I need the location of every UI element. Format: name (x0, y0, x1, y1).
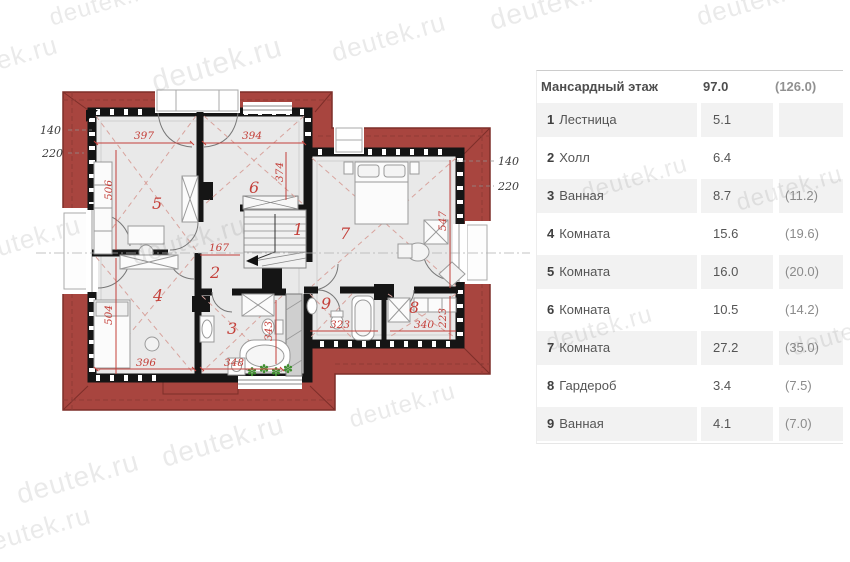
table-row: 3Ванная 8.7 (11.2) (537, 177, 843, 215)
room-name: Комната (559, 302, 610, 317)
room-2-number: 2 (209, 263, 220, 282)
room-net-area: 6.4 (701, 141, 773, 175)
room-gross-area: (11.2) (779, 179, 843, 213)
room-net-area: 10.5 (701, 293, 773, 327)
dim-374: 374 (274, 162, 286, 182)
ext-dim-right-220: 220 (497, 180, 519, 193)
table-row: 5Комната 16.0 (20.0) (537, 253, 843, 291)
room-number: 7 (547, 340, 554, 355)
room-5-number: 5 (152, 194, 162, 213)
legend-net-area: 97.0 (695, 79, 775, 94)
legend-header: Мансардный этаж 97.0 (126.0) (537, 71, 843, 101)
room-gross-area: (14.2) (779, 293, 843, 327)
room-8-number: 8 (409, 298, 419, 317)
room-legend-table: Мансардный этаж 97.0 (126.0) 1Лестница 5… (536, 70, 843, 444)
table-row: 2Холл 6.4 (537, 139, 843, 177)
room-name: Лестница (559, 112, 616, 127)
room-3-number: 3 (227, 319, 237, 338)
ext-dim-left-140: 140 (40, 124, 61, 137)
dim-340: 340 (414, 319, 434, 331)
dim-323: 323 (330, 319, 350, 331)
dim-504: 504 (103, 305, 115, 325)
room-net-area: 27.2 (701, 331, 773, 365)
room-7-number: 7 (340, 224, 351, 243)
room-9-number: 9 (321, 294, 331, 313)
room-name: Ванная (559, 416, 604, 431)
dim-348: 348 (224, 357, 244, 369)
table-row: 4Комната 15.6 (19.6) (537, 215, 843, 253)
table-row: 7Комната 27.2 (35.0) (537, 329, 843, 367)
room-gross-area: (7.0) (779, 407, 843, 441)
room-gross-area: (7.5) (779, 369, 843, 403)
room-name: Холл (559, 150, 590, 165)
room-gross-area: (35.0) (779, 331, 843, 365)
room-gross-area (779, 141, 843, 175)
room-number: 6 (547, 302, 554, 317)
room-number: 3 (547, 188, 554, 203)
plant-icon: ✽ (271, 365, 281, 379)
dim-394: 394 (242, 130, 262, 142)
table-row: 9Ванная 4.1 (7.0) (537, 405, 843, 443)
table-row: 8Гардероб 3.4 (7.5) (537, 367, 843, 405)
room-net-area: 5.1 (701, 103, 773, 137)
room-name: Комната (559, 226, 610, 241)
legend-gross-area: (126.0) (775, 79, 843, 94)
dim-343: 343 (263, 321, 275, 341)
room-gross-area: (20.0) (779, 255, 843, 289)
room-6-number: 6 (249, 178, 259, 197)
room-net-area: 8.7 (701, 179, 773, 213)
room-net-area: 3.4 (701, 369, 773, 403)
room-name: Комната (559, 340, 610, 355)
room-number: 4 (547, 226, 554, 241)
room-name: Ванная (559, 188, 604, 203)
room-number: 5 (547, 264, 554, 279)
plant-icon: ✽ (247, 365, 257, 379)
dim-396: 396 (136, 357, 156, 369)
room-1-number: 1 (293, 220, 303, 239)
room-name: Комната (559, 264, 610, 279)
room-number: 8 (547, 378, 554, 393)
ext-dim-left-220: 220 (41, 147, 63, 160)
dim-547: 547 (437, 211, 449, 231)
right-balcony (465, 221, 491, 284)
room-net-area: 16.0 (701, 255, 773, 289)
table-row: 1Лестница 5.1 (537, 101, 843, 139)
room-gross-area: (19.6) (779, 217, 843, 251)
room-name: Гардероб (559, 378, 616, 393)
room-number: 9 (547, 416, 554, 431)
dim-397: 397 (134, 130, 154, 142)
legend-title: Мансардный этаж (537, 79, 695, 94)
dim-167: 167 (209, 242, 229, 254)
table-row: 6Комната 10.5 (14.2) (537, 291, 843, 329)
room-4-number: 4 (152, 286, 163, 305)
dim-506: 506 (103, 180, 115, 200)
room-number: 2 (547, 150, 554, 165)
room-gross-area (779, 103, 843, 137)
room-net-area: 15.6 (701, 217, 773, 251)
plant-icon: ✽ (283, 362, 293, 376)
ext-dim-right-140: 140 (498, 155, 519, 168)
room-net-area: 4.1 (701, 407, 773, 441)
dim-223: 223 (437, 308, 449, 329)
room-number: 1 (547, 112, 554, 127)
